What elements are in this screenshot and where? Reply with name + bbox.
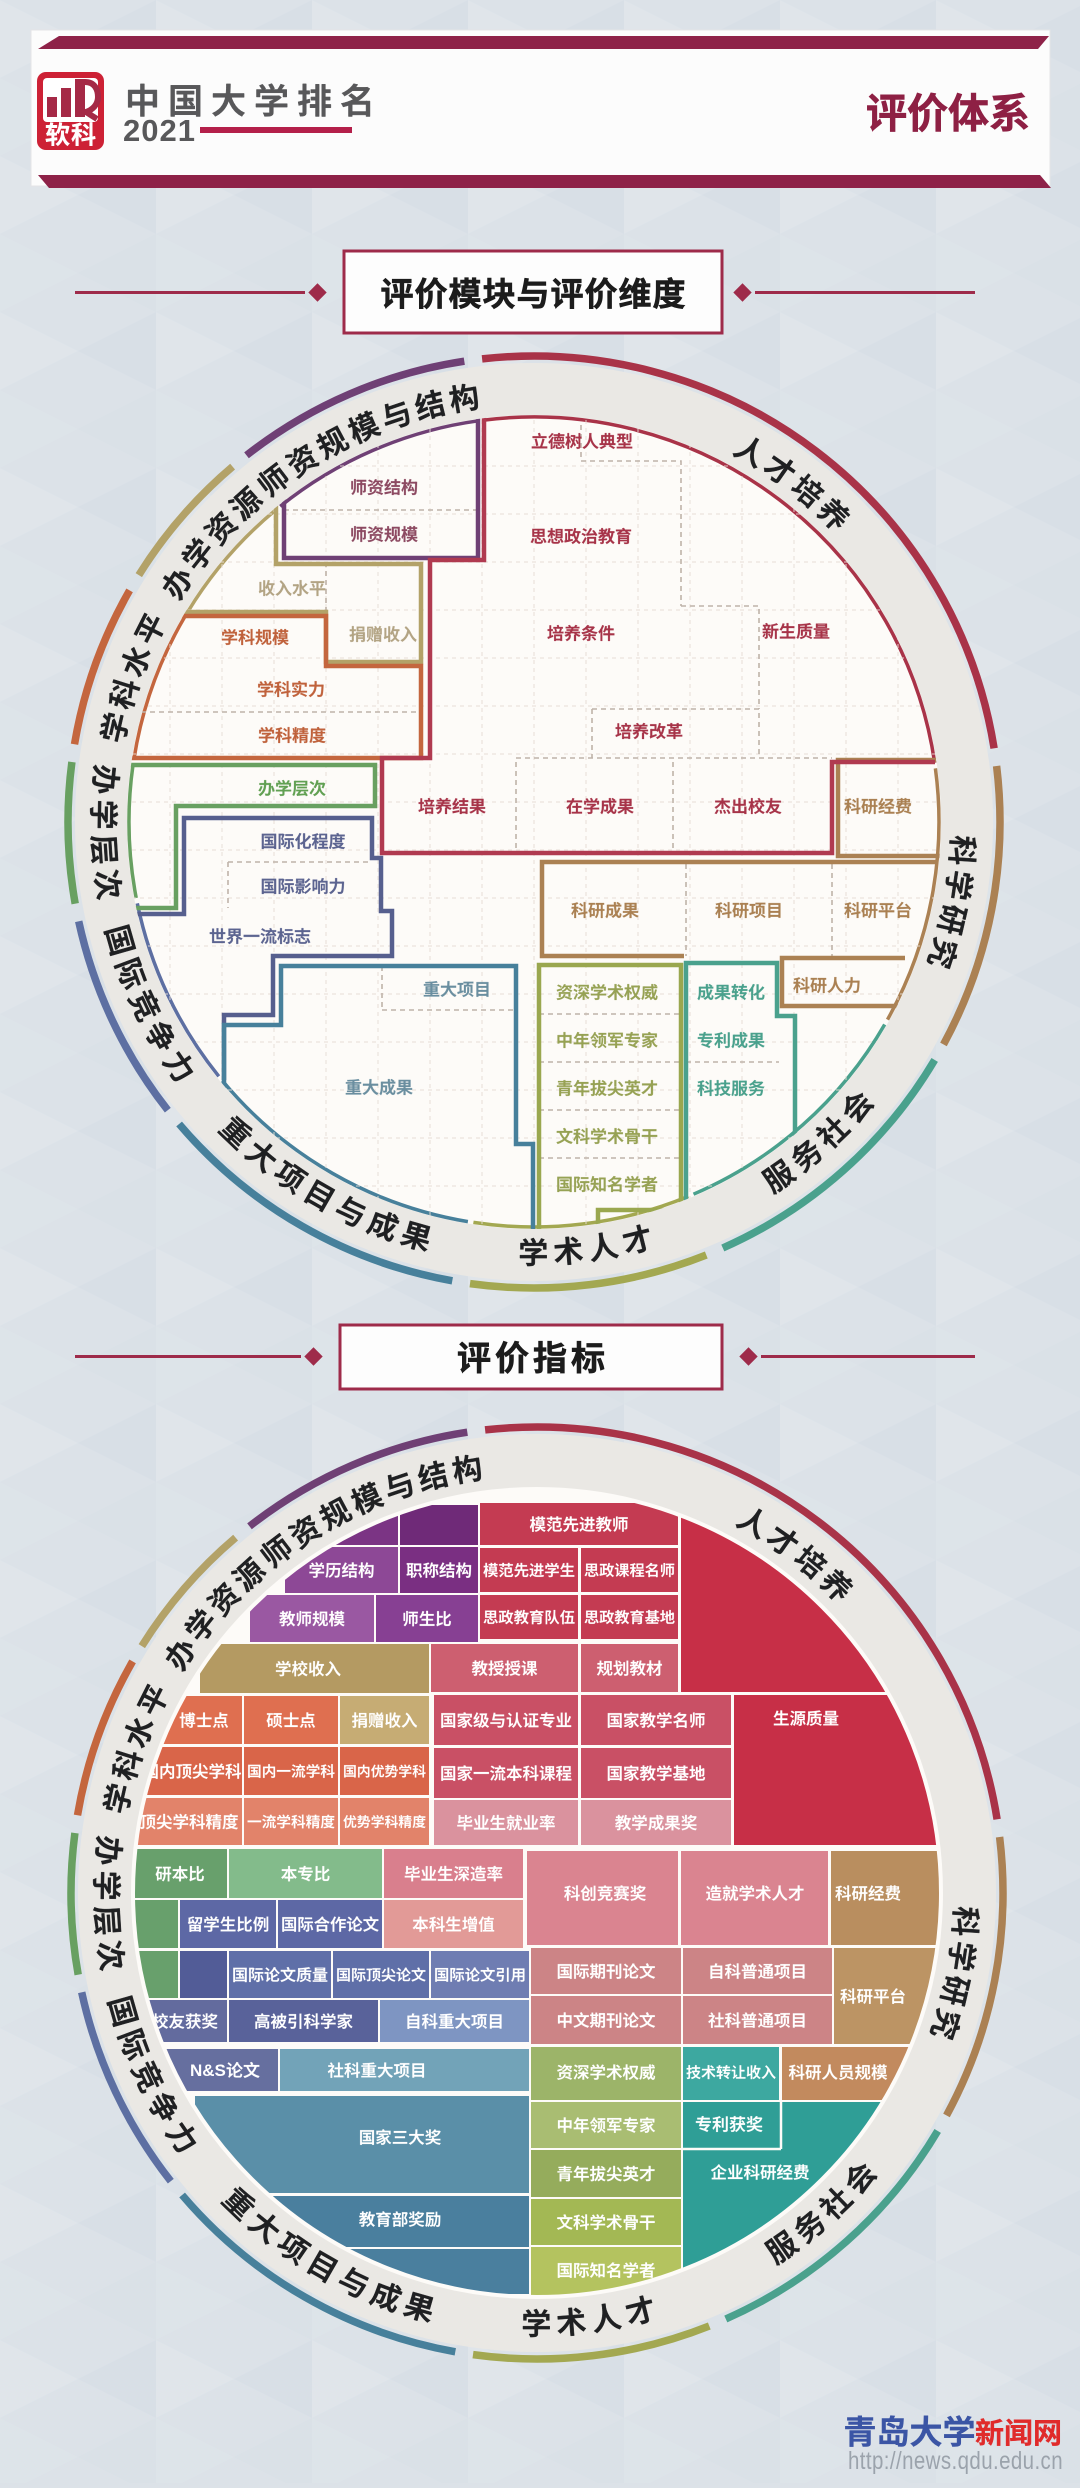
svg-text:http://news.qdu.edu.cn: http://news.qdu.edu.cn <box>848 2447 1063 2475</box>
svg-text:2021: 2021 <box>123 113 196 148</box>
svg-text:N&S: N&S <box>190 2061 226 2080</box>
